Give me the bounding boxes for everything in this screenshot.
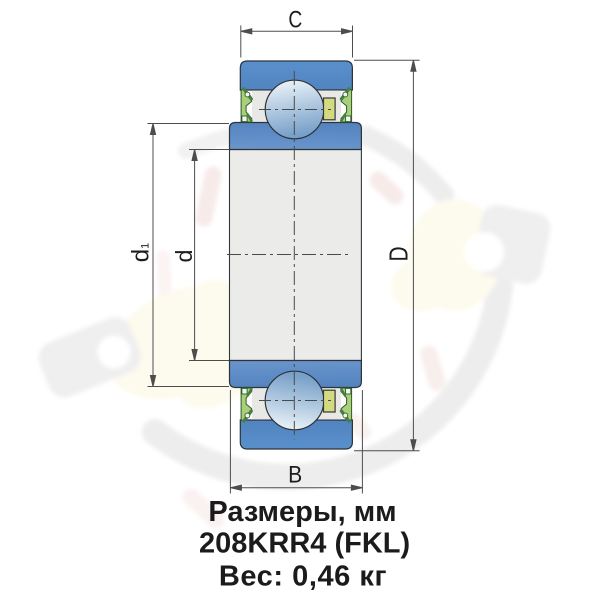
svg-text:Размеры, мм: Размеры, мм (208, 496, 396, 528)
svg-text:C: C (288, 5, 302, 33)
svg-text:B: B (288, 461, 302, 488)
svg-text:208KRR4 (FKL): 208KRR4 (FKL) (199, 527, 410, 559)
svg-text:D: D (385, 246, 413, 261)
svg-text:Вес: 0,46 кг: Вес: 0,46 кг (219, 560, 387, 592)
svg-text:d: d (171, 250, 197, 263)
